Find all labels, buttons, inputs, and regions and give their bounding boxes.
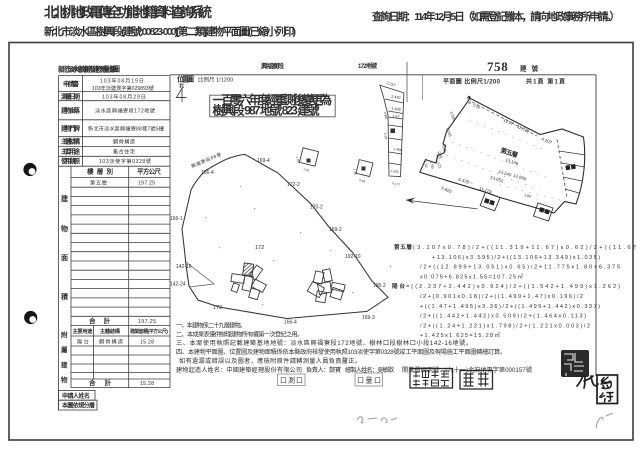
svg-text:172地號: 172地號 — [358, 62, 377, 70]
svg-text:使用執照: 使用執照 — [60, 156, 81, 165]
svg-text:積: 積 — [60, 292, 69, 301]
svg-text:淡水區興福寮段172地號: 淡水區興福寮段172地號 — [95, 107, 156, 115]
svg-text:142-24: 142-24 — [170, 282, 186, 288]
svg-text:口測口: 口測口 — [280, 376, 303, 385]
svg-text:169-4: 169-4 — [257, 158, 270, 164]
svg-text:建物門牌: 建物門牌 — [60, 124, 81, 133]
svg-text:166-4: 166-4 — [201, 170, 214, 176]
svg-text:附: 附 — [61, 330, 68, 339]
svg-text:物: 物 — [61, 375, 68, 384]
svg-text:合 計: 合 計 — [88, 378, 112, 387]
svg-text:負責人：鄭寶: 負責人：鄭寶 — [306, 366, 341, 374]
svg-text:平面圖 比例尺1/200: 平面圖 比例尺1/200 — [443, 78, 501, 86]
svg-text:建築面積(平方公尺): 建築面積(平方公尺) — [129, 328, 168, 335]
svg-text:陽台: 陽台 — [392, 282, 405, 290]
svg-text:15.28: 15.28 — [140, 340, 154, 346]
svg-text:主體結構: 主體結構 — [100, 327, 121, 335]
svg-text:195-2: 195-2 — [373, 283, 386, 289]
svg-text:四、本建物平面圖、位置圖及建物面積係依本縣政府核發使用執照1: 四、本建物平面圖、位置圖及建物面積係依本縣政府核發使用執照103淡使字第0328… — [176, 348, 506, 356]
svg-text:申請人姓名: 申請人姓名 — [62, 392, 90, 400]
svg-text:繪製人姓名：吳敏歇: 繪製人姓名：吳敏歇 — [345, 366, 394, 374]
svg-text:第五層: 第五層 — [393, 243, 412, 251]
svg-text:15.28: 15.28 — [140, 381, 154, 387]
svg-text:172: 172 — [213, 305, 222, 311]
svg-text:建物坐落: 建物坐落 — [60, 106, 81, 115]
svg-text:新北市淡水地政事務所建物測量成果圖: 新北市淡水地政事務所建物測量成果圖 — [58, 65, 120, 74]
svg-text:172-2: 172-2 — [287, 182, 300, 188]
svg-text:主要用途: 主要用途 — [73, 327, 94, 335]
svg-text:主要用途: 主要用途 — [61, 146, 81, 155]
svg-text:三、本案使用執照記載建築基地地號：淡水區興福寮段172地號、: 三、本案使用執照記載建築基地地號：淡水區興福寮段172地號、樹林口段樹林口小段1… — [176, 339, 472, 347]
svg-text:開業費調字號：(九十一)北府地專字第000157號: 開業費調字號：(九十一)北府地專字第000157號 — [402, 366, 532, 374]
svg-text:172: 172 — [255, 245, 264, 251]
svg-text:屬: 屬 — [61, 345, 68, 354]
svg-text:鋼骨構造: 鋼骨構造 — [99, 338, 124, 346]
svg-text:比例尺 1/1200: 比例尺 1/1200 — [198, 76, 233, 84]
svg-text:169-2: 169-2 — [329, 227, 342, 233]
svg-text:平方公尺: 平方公尺 — [137, 167, 162, 176]
svg-text:+1.425x1.625=15.28㎡: +1.425x1.625=15.28㎡ — [420, 331, 500, 339]
svg-text:一、本建物係二十九層建物。: 一、本建物係二十九層建物。 — [176, 322, 246, 330]
svg-text:建: 建 — [60, 360, 68, 369]
svg-text:集合住宅: 集合住宅 — [113, 147, 135, 155]
svg-text:/2+((1.24+1.221)x1.798)/2+(1.2: /2+((1.24+1.221)x1.798)/2+(1.221x0.003)/… — [420, 323, 590, 329]
svg-text:如有遺漏或錯誤以及圖者，應檢附原件請轉測量人員負責釐正。: 如有遺漏或錯誤以及圖者，應檢附原件請轉測量人員負責釐正。 — [179, 357, 361, 365]
svg-text:/2+((1.442+1.442)x0.509)/2+(1.: /2+((1.442+1.442)x0.509)/2+(1.464x0.113) — [420, 314, 586, 320]
svg-text:170-2: 170-2 — [310, 205, 323, 211]
svg-text:166-4: 166-4 — [284, 320, 297, 326]
svg-text:測量日期: 測量日期 — [61, 92, 81, 101]
svg-text:新北市淡水區興福寮88巷7號5樓: 新北市淡水區興福寮88巷7號5樓 — [88, 125, 164, 133]
svg-text:共1頁 第1頁: 共1頁 第1頁 — [526, 78, 565, 86]
svg-text:新北市淡水區樹興段(建號:00823-000)[第二類]建物: 新北市淡水區樹興段(建號:00823-000)[第二類]建物平面圖(已縮小列印) — [44, 25, 296, 38]
svg-text:面: 面 — [61, 254, 68, 262]
svg-text:申請書: 申請書 — [63, 79, 80, 88]
svg-text:口量口: 口量口 — [357, 377, 381, 385]
svg-text:建物起造人姓名：中國建築經理股份有限公司: 建物起造人姓名：中國建築經理股份有限公司 — [176, 366, 302, 374]
svg-text:興福寮段: 興福寮段 — [261, 61, 285, 70]
svg-text:169-3: 169-3 — [362, 315, 375, 321]
svg-text:陽台: 陽台 — [77, 338, 89, 346]
svg-text:758: 758 — [487, 59, 508, 74]
svg-text:/2+((12.899+13.051)x0.65)/2+11: /2+((12.899+13.051)x0.65)/2+11.775x1.80+… — [420, 265, 620, 271]
svg-text:樓 層 別: 樓 層 別 — [87, 167, 114, 176]
svg-text:103年淡建測字第029893號: 103年淡建測字第029893號 — [92, 84, 155, 92]
svg-text:建: 建 — [61, 194, 69, 203]
svg-text:第五層: 第五層 — [90, 179, 107, 187]
svg-text:合 計: 合 計 — [88, 316, 111, 325]
svg-text:+13.106)x3.595)/2+((13.106+13.: +13.106)x3.595)/2+((13.106+13.349)x1.035… — [432, 255, 600, 261]
svg-text:166-1: 166-1 — [170, 216, 183, 222]
svg-text:主體結構: 主體結構 — [61, 137, 81, 146]
svg-text:197.25: 197.25 — [138, 319, 156, 325]
svg-text:192-10: 192-10 — [345, 254, 361, 260]
svg-text:103年08月29日: 103年08月29日 — [102, 93, 146, 101]
svg-text:查詢日期：114年 12月5日（如需登記謄本，請向地政事務所: 查詢日期：114年 12月5日（如需登記謄本，請向地政事務所申請。） — [371, 10, 620, 23]
svg-text:北北桃地政電傳全功能地籍資料查詢系統: 北北桃地政電傳全功能地籍資料查詢系統 — [44, 4, 213, 20]
svg-text:197.25: 197.25 — [138, 181, 155, 187]
svg-text:本圖依規分層: 本圖依規分層 — [62, 402, 95, 410]
svg-text:物: 物 — [61, 224, 68, 233]
svg-text:鋼骨構造: 鋼骨構造 — [113, 138, 136, 146]
svg-text:位置圖: 位置圖 — [177, 75, 194, 84]
svg-text:樹興段 987 地號 823 建號: 樹興段 987 地號 823 建號 — [213, 103, 320, 118]
svg-text:103年08月19日: 103年08月19日 — [100, 77, 144, 85]
svg-text:二、本成果表僅供辦理建物所有權第一次登記之用。: 二、本成果表僅供辦理建物所有權第一次登記之用。 — [176, 330, 303, 338]
svg-text:142-16: 142-16 — [176, 264, 192, 270]
svg-text:103淡使字第0328號: 103淡使字第0328號 — [99, 157, 152, 165]
